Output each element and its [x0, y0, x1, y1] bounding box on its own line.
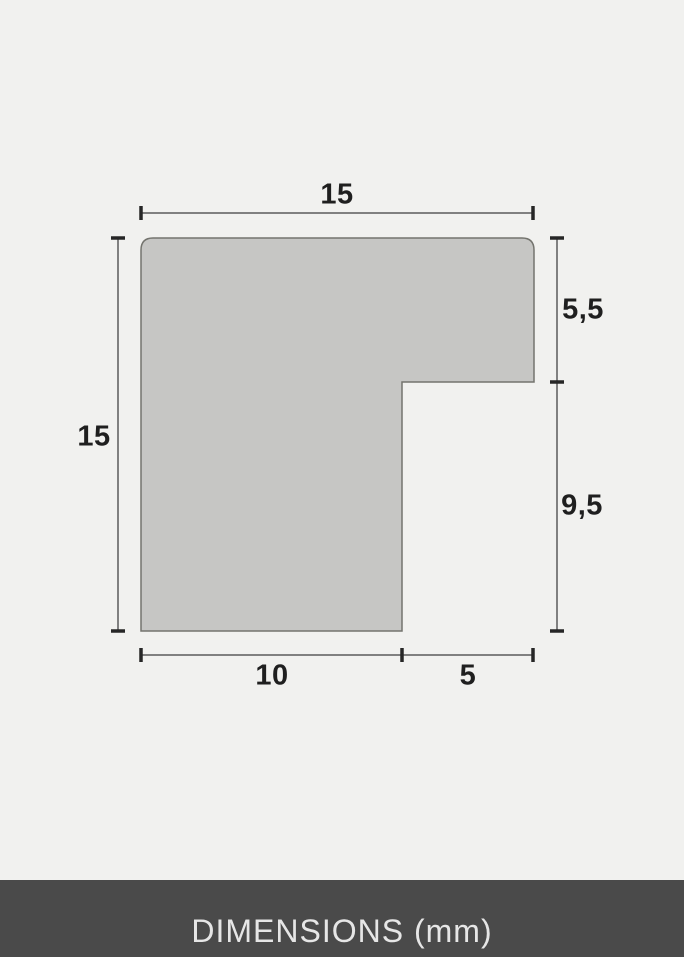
- dim-label-bottom-left-width: 10: [255, 662, 288, 691]
- moulding-profile-shape: [141, 238, 534, 631]
- footer-dimensions-label: DIMENSIONS (mm): [0, 915, 684, 947]
- dim-label-left-height: 15: [77, 423, 110, 452]
- product-dimension-screenshot: 15 15 5,5 9,5 10 5 DIMENSIONS (mm): [0, 0, 684, 957]
- dim-label-bottom-right-width: 5: [460, 662, 477, 691]
- footer-bar: DIMENSIONS (mm): [0, 880, 684, 957]
- diagram-canvas: 15 15 5,5 9,5 10 5: [0, 0, 684, 880]
- dim-label-right-lower-height: 9,5: [561, 492, 603, 521]
- dim-label-right-upper-height: 5,5: [562, 296, 604, 325]
- dim-label-top-width: 15: [320, 181, 353, 210]
